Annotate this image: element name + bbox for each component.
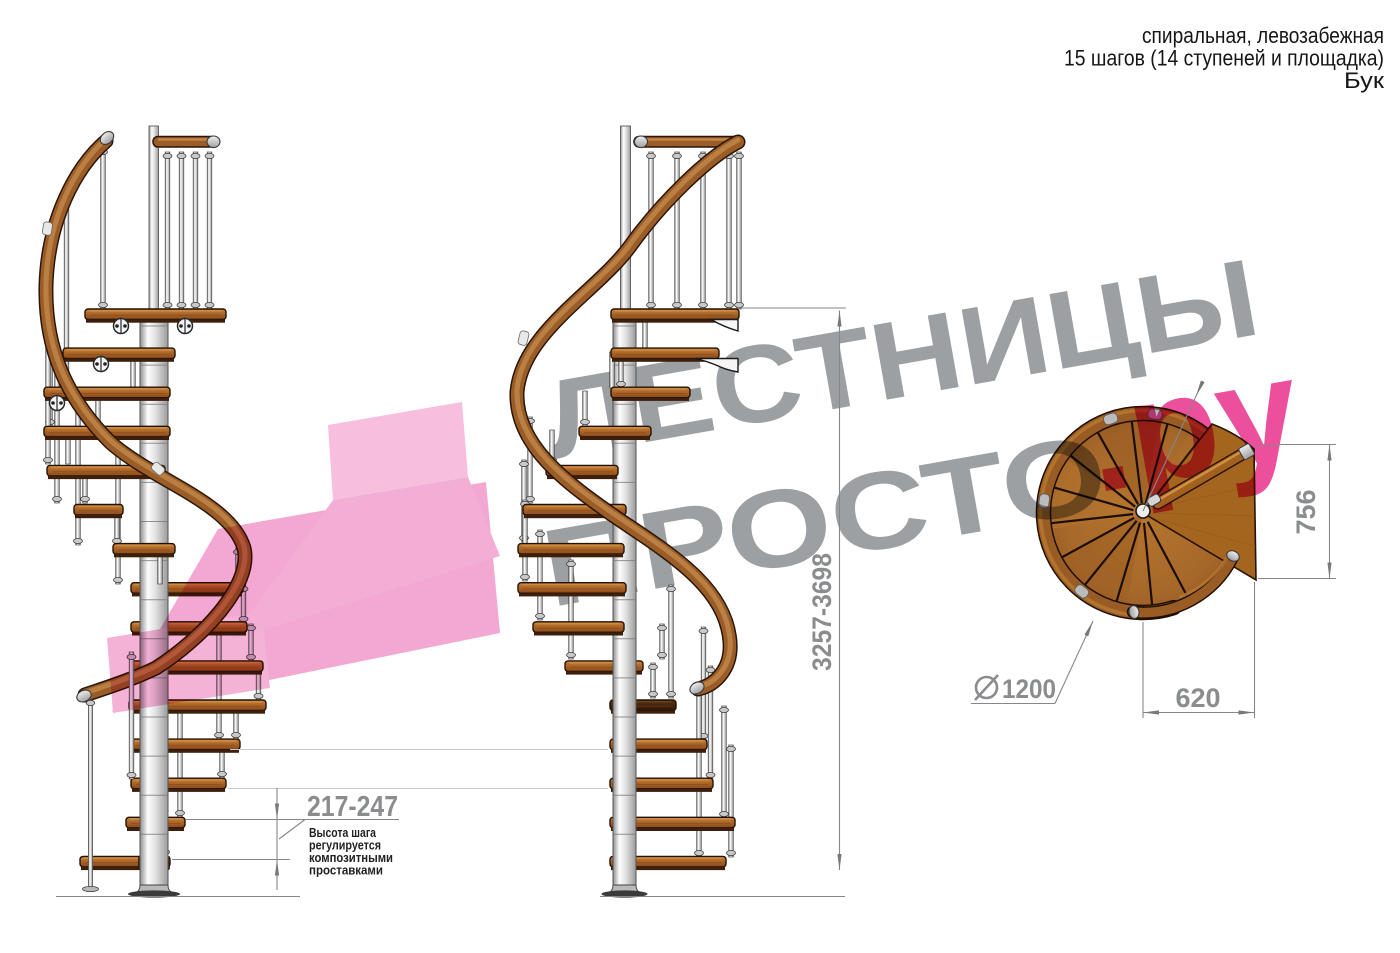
svg-text:756: 756: [1291, 489, 1321, 534]
svg-text:проставками: проставками: [309, 863, 383, 878]
svg-text:620: 620: [1175, 683, 1220, 713]
svg-text:Бук: Бук: [1344, 68, 1384, 93]
svg-text:15 шагов (14 ступеней и площад: 15 шагов (14 ступеней и площадка): [1064, 46, 1384, 71]
svg-text:217-247: 217-247: [307, 791, 398, 823]
svg-text:спиральная, левозабежная: спиральная, левозабежная: [1142, 23, 1384, 48]
svg-text:3257-3698: 3257-3698: [807, 553, 837, 671]
svg-text:1200: 1200: [1002, 674, 1056, 704]
